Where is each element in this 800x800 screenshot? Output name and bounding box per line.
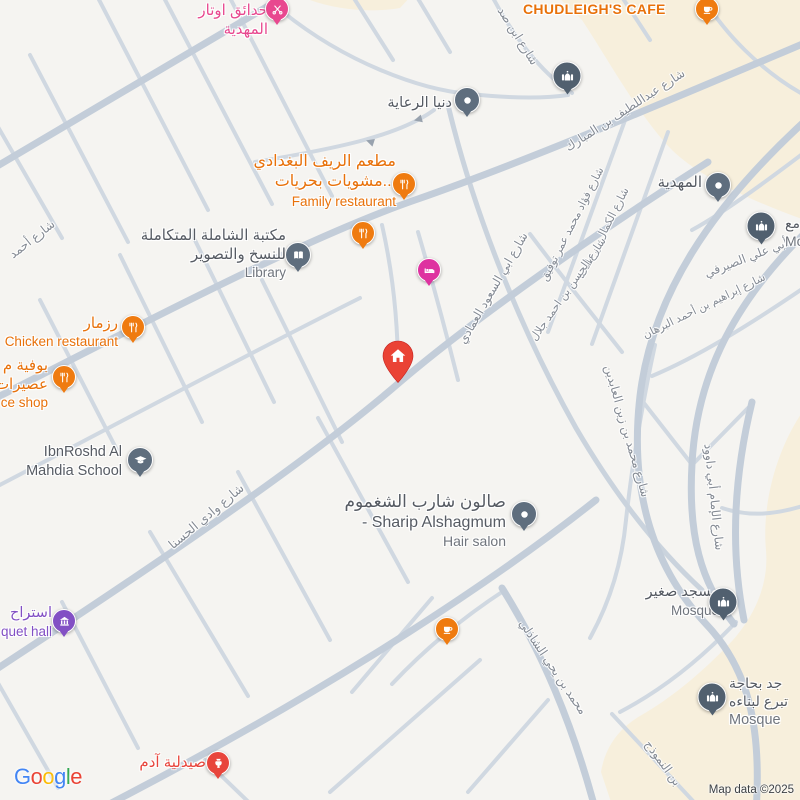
building-icon bbox=[58, 615, 71, 628]
hotel-pin[interactable] bbox=[417, 258, 441, 282]
restaurant-pin[interactable] bbox=[351, 221, 375, 245]
hair-salon-pin[interactable] bbox=[511, 501, 537, 527]
poi-label-banquet-hall[interactable]: استراح quet hall bbox=[1, 604, 52, 640]
scissors-icon bbox=[271, 3, 284, 16]
generic-place-pin[interactable] bbox=[705, 172, 731, 198]
graduation-cap-icon bbox=[133, 453, 148, 468]
mosque-icon bbox=[558, 67, 576, 85]
mosque-icon bbox=[714, 593, 732, 611]
road-network bbox=[0, 0, 800, 800]
mosque-pin[interactable] bbox=[553, 62, 582, 91]
coffee-icon bbox=[701, 3, 714, 16]
poi-label-ibnroshd-school[interactable]: IbnRoshd Al Mahdia School bbox=[26, 443, 122, 480]
poi-label-mosque-needs-donation[interactable]: جد بحاجة تبرع لبناءه Mosque bbox=[729, 675, 788, 729]
mosque-pin[interactable] bbox=[747, 212, 776, 241]
map-canvas[interactable]: شارع ابن صد شارع عبداللطيف بن المبارك شا… bbox=[0, 0, 800, 800]
generic-place-pin[interactable] bbox=[454, 87, 480, 113]
poi-label-library[interactable]: مكتبة الشاملة المتكاملة للنسخ والتصوير L… bbox=[141, 226, 286, 282]
poi-label-adam-pharmacy[interactable]: صيدلية آدم bbox=[139, 753, 206, 772]
mosque-icon bbox=[703, 688, 721, 706]
book-icon bbox=[291, 248, 306, 263]
poi-label-donia-alreaya[interactable]: دنيا الرعاية bbox=[387, 94, 452, 113]
restaurant-icon bbox=[58, 371, 71, 384]
library-pin[interactable] bbox=[285, 242, 311, 268]
bed-icon bbox=[423, 264, 436, 277]
restaurant-pin[interactable] bbox=[121, 315, 145, 339]
restaurant-icon bbox=[398, 178, 411, 191]
map-attribution: Map data ©2025 bbox=[709, 784, 794, 796]
poi-label-hair-salon[interactable]: صالون شارب الشغموم - Sharip Alshagmum Ha… bbox=[344, 491, 506, 551]
dot-icon bbox=[517, 507, 532, 522]
poi-label-juice-shop[interactable]: بوفية م عصيرات ce shop bbox=[0, 356, 48, 412]
google-logo[interactable]: Google bbox=[14, 764, 82, 790]
pharmacy-icon bbox=[212, 757, 225, 770]
restaurant-icon bbox=[127, 321, 140, 334]
pharmacy-pin[interactable] bbox=[206, 751, 230, 775]
banquet-hall-pin[interactable] bbox=[52, 609, 76, 633]
dot-icon bbox=[460, 93, 475, 108]
mosque-pin[interactable] bbox=[698, 683, 727, 712]
school-pin[interactable] bbox=[127, 447, 153, 473]
poi-label-mosque-right-cut[interactable]: مع Mo bbox=[785, 215, 800, 251]
restaurant-pin[interactable] bbox=[52, 365, 76, 389]
cafe-pin[interactable] bbox=[435, 617, 459, 641]
poi-label-family-restaurant[interactable]: مطعم الريف البغدادي مشويات بحريات... Fam… bbox=[254, 152, 396, 210]
poi-label-chudleighs-cafe[interactable]: CHUDLEIGH'S CAFE bbox=[523, 1, 666, 19]
coffee-icon bbox=[441, 623, 454, 636]
restaurant-pin[interactable] bbox=[392, 172, 416, 196]
mosque-pin[interactable] bbox=[709, 588, 738, 617]
home-marker-pin[interactable] bbox=[381, 340, 415, 384]
restaurant-icon bbox=[357, 227, 370, 240]
poi-label-rizmar-chicken[interactable]: رزمار Chicken restaurant bbox=[5, 314, 118, 350]
dot-icon bbox=[711, 178, 726, 193]
poi-label-otar-gardens[interactable]: حدائق اوتار المهدية bbox=[198, 1, 268, 39]
poi-label-almahdia[interactable]: المهدية bbox=[658, 173, 702, 192]
mosque-icon bbox=[752, 217, 770, 235]
